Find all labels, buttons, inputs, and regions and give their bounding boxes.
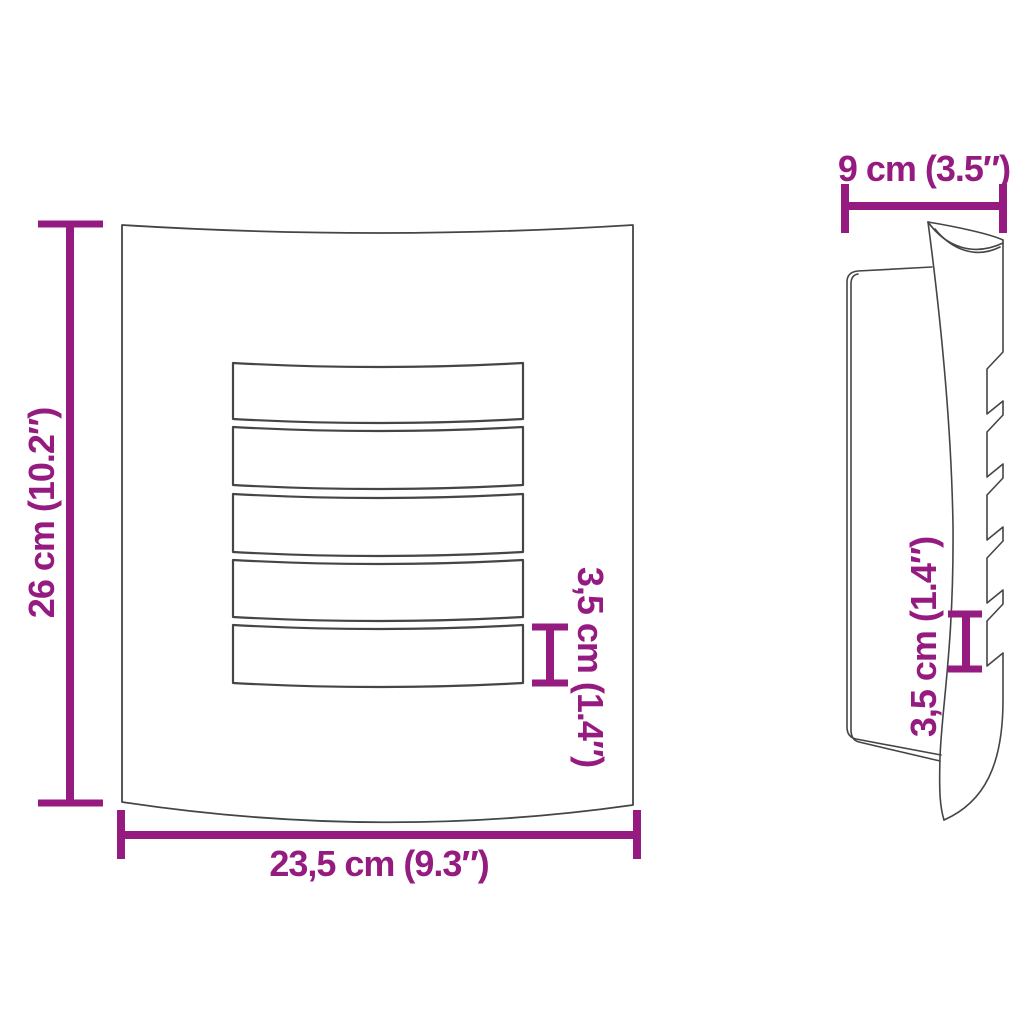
front-outline [122, 225, 633, 822]
front-dimensions [38, 224, 637, 859]
width-dimension-label: 23,5 cm (9.3″) [269, 843, 488, 884]
front-slat-1 [233, 363, 523, 423]
front-slat-3 [233, 494, 523, 556]
side-top-fold-edge [928, 222, 1003, 240]
front-slat-dimension-label: 3,5 cm (1.4″) [570, 567, 611, 767]
diagram-canvas: 26 cm (10.2″) 23,5 cm (9.3″) 3,5 cm (1.4… [0, 0, 1024, 1024]
depth-dimension-label: 9 cm (3.5″) [838, 148, 1010, 189]
front-slat-2 [233, 427, 523, 489]
front-slat-5 [233, 625, 523, 687]
height-dimension-label: 26 cm (10.2″) [21, 408, 62, 618]
product-dimension-diagram: 26 cm (10.2″) 23,5 cm (9.3″) 3,5 cm (1.4… [0, 0, 1024, 1024]
front-view [122, 225, 633, 822]
dimension-labels: 26 cm (10.2″) 23,5 cm (9.3″) 3,5 cm (1.4… [21, 148, 1010, 884]
side-slat-dimension-label: 3,5 cm (1.4″) [903, 537, 944, 737]
front-slat-4 [233, 560, 523, 621]
